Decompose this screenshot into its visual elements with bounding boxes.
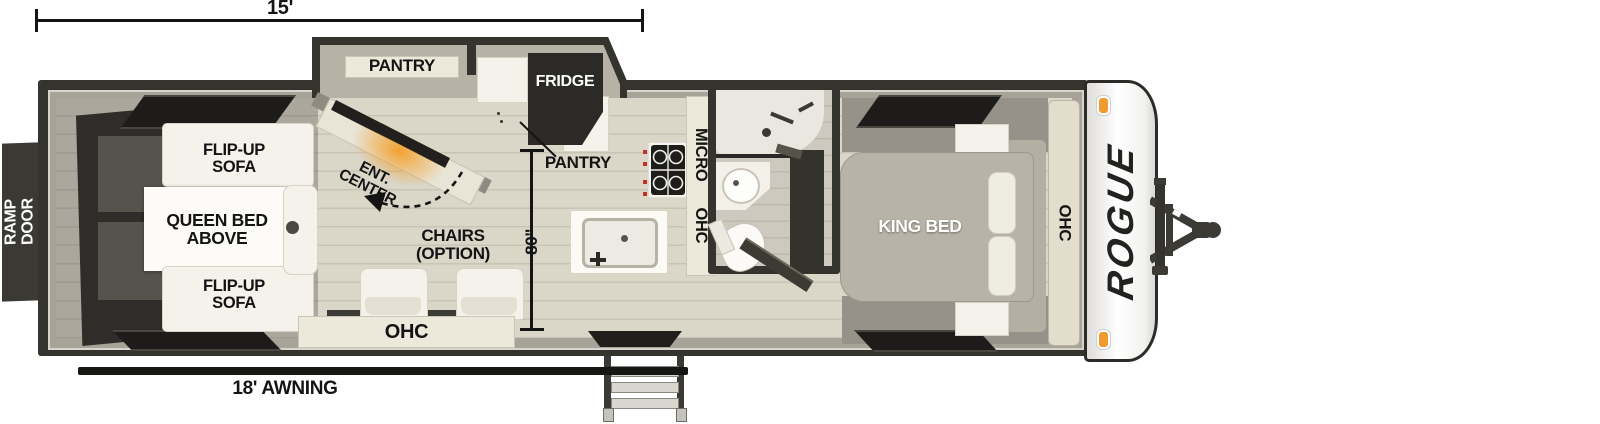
width-dimension-tick-top <box>520 149 544 152</box>
step-foot <box>676 408 687 422</box>
shower <box>716 90 824 154</box>
awning-label: 18' AWNING <box>200 379 370 399</box>
pantry-label: PANTRY <box>535 154 621 172</box>
chairs-option-label: CHAIRS (OPTION) <box>404 227 502 262</box>
sink-faucet-handle <box>590 258 606 262</box>
ramp-door: RAMP DOOR <box>2 142 38 301</box>
rv-floorplan-canvas: 15' PANTRY FRIDGE PANTRY RAMP DOOR FLIP-… <box>0 0 1600 424</box>
tv-swivel-arrow <box>352 166 470 230</box>
king-bed-text: KING BED <box>878 216 961 236</box>
pantry-slide-label: PANTRY <box>352 57 452 75</box>
stove-knob <box>643 162 647 166</box>
width-dimension-label-wrap: 80" <box>518 222 546 262</box>
stove-knob <box>643 180 647 184</box>
cup-holder <box>286 221 299 234</box>
marker-light-bottom <box>1097 330 1110 349</box>
sink-drain <box>621 235 628 242</box>
flip-up-sofa-bottom-label: FLIP-UP SOFA <box>190 278 278 312</box>
pillow <box>988 172 1016 234</box>
cabinet-handle-dot <box>497 112 500 115</box>
accent-chair <box>360 268 428 320</box>
stove-cooktop <box>648 142 688 198</box>
hitch-a-frame <box>1150 178 1222 282</box>
nightstand-bottom <box>955 302 1009 336</box>
length-dimension-tick-left <box>35 9 38 32</box>
living-ohc: OHC <box>298 316 515 348</box>
queen-bed-above-text: QUEEN BED ABOVE <box>161 211 273 247</box>
queen-bed-above-label: QUEEN BED ABOVE <box>144 187 290 271</box>
chair-back-cushion <box>461 297 517 315</box>
length-dimension-line <box>36 19 643 22</box>
ramp-door-label: RAMP DOOR <box>3 198 37 246</box>
step-tread <box>611 398 679 409</box>
flip-up-sofa-top-label: FLIP-UP SOFA <box>190 142 278 176</box>
pantry-slideout-divider <box>467 43 476 75</box>
cabinet-handle-dot <box>500 120 503 123</box>
shower-head <box>762 128 771 137</box>
chairs-option-text: CHAIRS (OPTION) <box>416 226 490 263</box>
step-foot <box>603 408 614 422</box>
garage-window-bottom <box>112 330 282 351</box>
bath-wardrobe <box>790 150 824 268</box>
step-tread <box>611 382 679 393</box>
stove-knob <box>643 192 647 196</box>
bedroom-ohc-label: OHC <box>1055 205 1073 242</box>
step-rail-left <box>604 356 611 410</box>
bedroom-ohc-cabinet: OHC <box>1048 100 1080 346</box>
fridge-label: FRIDGE <box>522 74 608 91</box>
living-ohc-label: OHC <box>385 322 429 343</box>
bath-sink <box>722 168 760 204</box>
brand-logo: ROGUE <box>1100 139 1142 304</box>
pillow <box>988 236 1016 296</box>
width-dimension-tick-bottom <box>520 328 544 331</box>
width-dimension-label: 80" <box>523 229 541 255</box>
entry-door-mat <box>588 331 682 347</box>
awning-bar <box>78 367 688 375</box>
accent-chair <box>456 268 524 320</box>
length-dimension-tick-right <box>641 9 644 32</box>
king-bed-label: KING BED <box>878 217 962 235</box>
length-dimension-label: 15' <box>230 0 330 19</box>
bath-sink-drain <box>733 180 739 186</box>
micro-ohc-label: MICROOHC <box>692 128 709 243</box>
chair-back-cushion <box>365 297 421 315</box>
front-cap: ROGUE <box>1084 80 1158 362</box>
entry-steps <box>604 356 684 422</box>
marker-light-top <box>1097 96 1110 115</box>
fridge-counter <box>477 57 528 103</box>
stove-knob <box>643 150 647 154</box>
